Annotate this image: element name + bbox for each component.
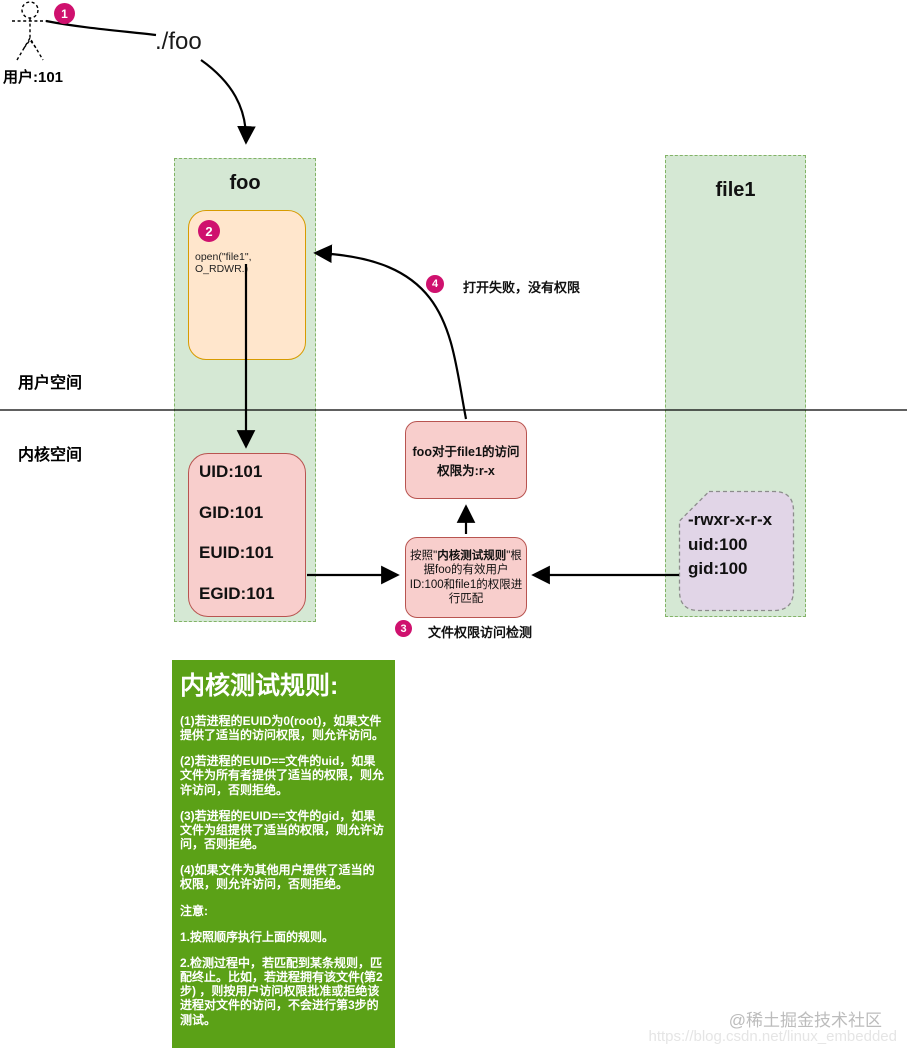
- euid-value: EUID:101: [199, 543, 301, 563]
- kernel-match-box: 按照"内核测试规则"根据foo的有效用户ID:100和file1的权限进行匹配: [405, 537, 527, 618]
- kernel-space-label: 内核空间: [18, 441, 82, 465]
- kernel-rules-panel: 内核测试规则: (1)若进程的EUID为0(root)，如果文件提供了适当的访问…: [172, 660, 395, 1048]
- file1-zone-title: file1: [666, 156, 805, 202]
- rule-2: (2)若进程的EUID==文件的uid，如果文件为所有者提供了适当的权限，则允许…: [180, 754, 385, 796]
- step-badge-2: 2: [198, 220, 220, 242]
- egid-value: EGID:101: [199, 584, 301, 604]
- uid-value: UID:101: [199, 462, 301, 482]
- file-uid-value: uid:100: [688, 533, 792, 558]
- watermark-url: https://blog.csdn.net/linux_embedded: [648, 1028, 897, 1045]
- file-mode-value: -rwxr-x-r-x: [688, 508, 792, 533]
- user-space-label: 用户空间: [18, 369, 82, 393]
- exec-edge-label: ./foo: [155, 28, 202, 56]
- file-permission-text: -rwxr-x-r-x uid:100 gid:100: [688, 508, 792, 582]
- file-gid-value: gid:100: [688, 557, 792, 582]
- rules-note-1: 1.按照顺序执行上面的规则。: [180, 930, 385, 944]
- open-call-box: 2 open("file1", O_RDWR.): [188, 210, 306, 360]
- step-badge-1: 1: [54, 3, 75, 24]
- rule-1: (1)若进程的EUID为0(root)，如果文件提供了适当的访问权限，则允许访问…: [180, 714, 385, 742]
- gid-value: GID:101: [199, 503, 301, 523]
- step4-label: 打开失败，没有权限: [463, 277, 580, 296]
- open-call-code: open("file1", O_RDWR.): [195, 251, 301, 275]
- rules-title: 内核测试规则:: [180, 666, 385, 702]
- rule-3: (3)若进程的EUID==文件的gid，如果文件为组提供了适当的权限，则允许访问…: [180, 809, 385, 851]
- step3-label: 文件权限访问检测: [428, 622, 532, 641]
- process-credentials-box: UID:101 GID:101 EUID:101 EGID:101: [188, 453, 306, 617]
- actor-label: 用户:101: [3, 66, 63, 87]
- rules-note-title: 注意:: [180, 904, 385, 918]
- kernel-match-text: 按照"内核测试规则"根据foo的有效用户ID:100和file1的权限进行匹配: [409, 549, 523, 607]
- access-result-box: foo对于file1的访问权限为:r-x: [405, 421, 527, 499]
- access-result-text: foo对于file1的访问权限为:r-x: [410, 441, 522, 479]
- step-badge-3: 3: [395, 620, 412, 637]
- diagram-canvas: { "diagram": { "badges": { "b1": "1", "b…: [0, 0, 907, 1052]
- step-badge-4: 4: [426, 275, 444, 293]
- edge-access-to-open: [316, 253, 466, 419]
- edge-exec-b: [201, 60, 246, 142]
- rule-4: (4)如果文件为其他用户提供了适当的权限，则允许访问，否则拒绝。: [180, 863, 385, 891]
- rules-note-2: 2.检测过程中，若匹配到某条规则，匹配终止。比如，若进程拥有该文件(第2步) ，…: [180, 956, 385, 1027]
- foo-zone-title: foo: [175, 159, 315, 195]
